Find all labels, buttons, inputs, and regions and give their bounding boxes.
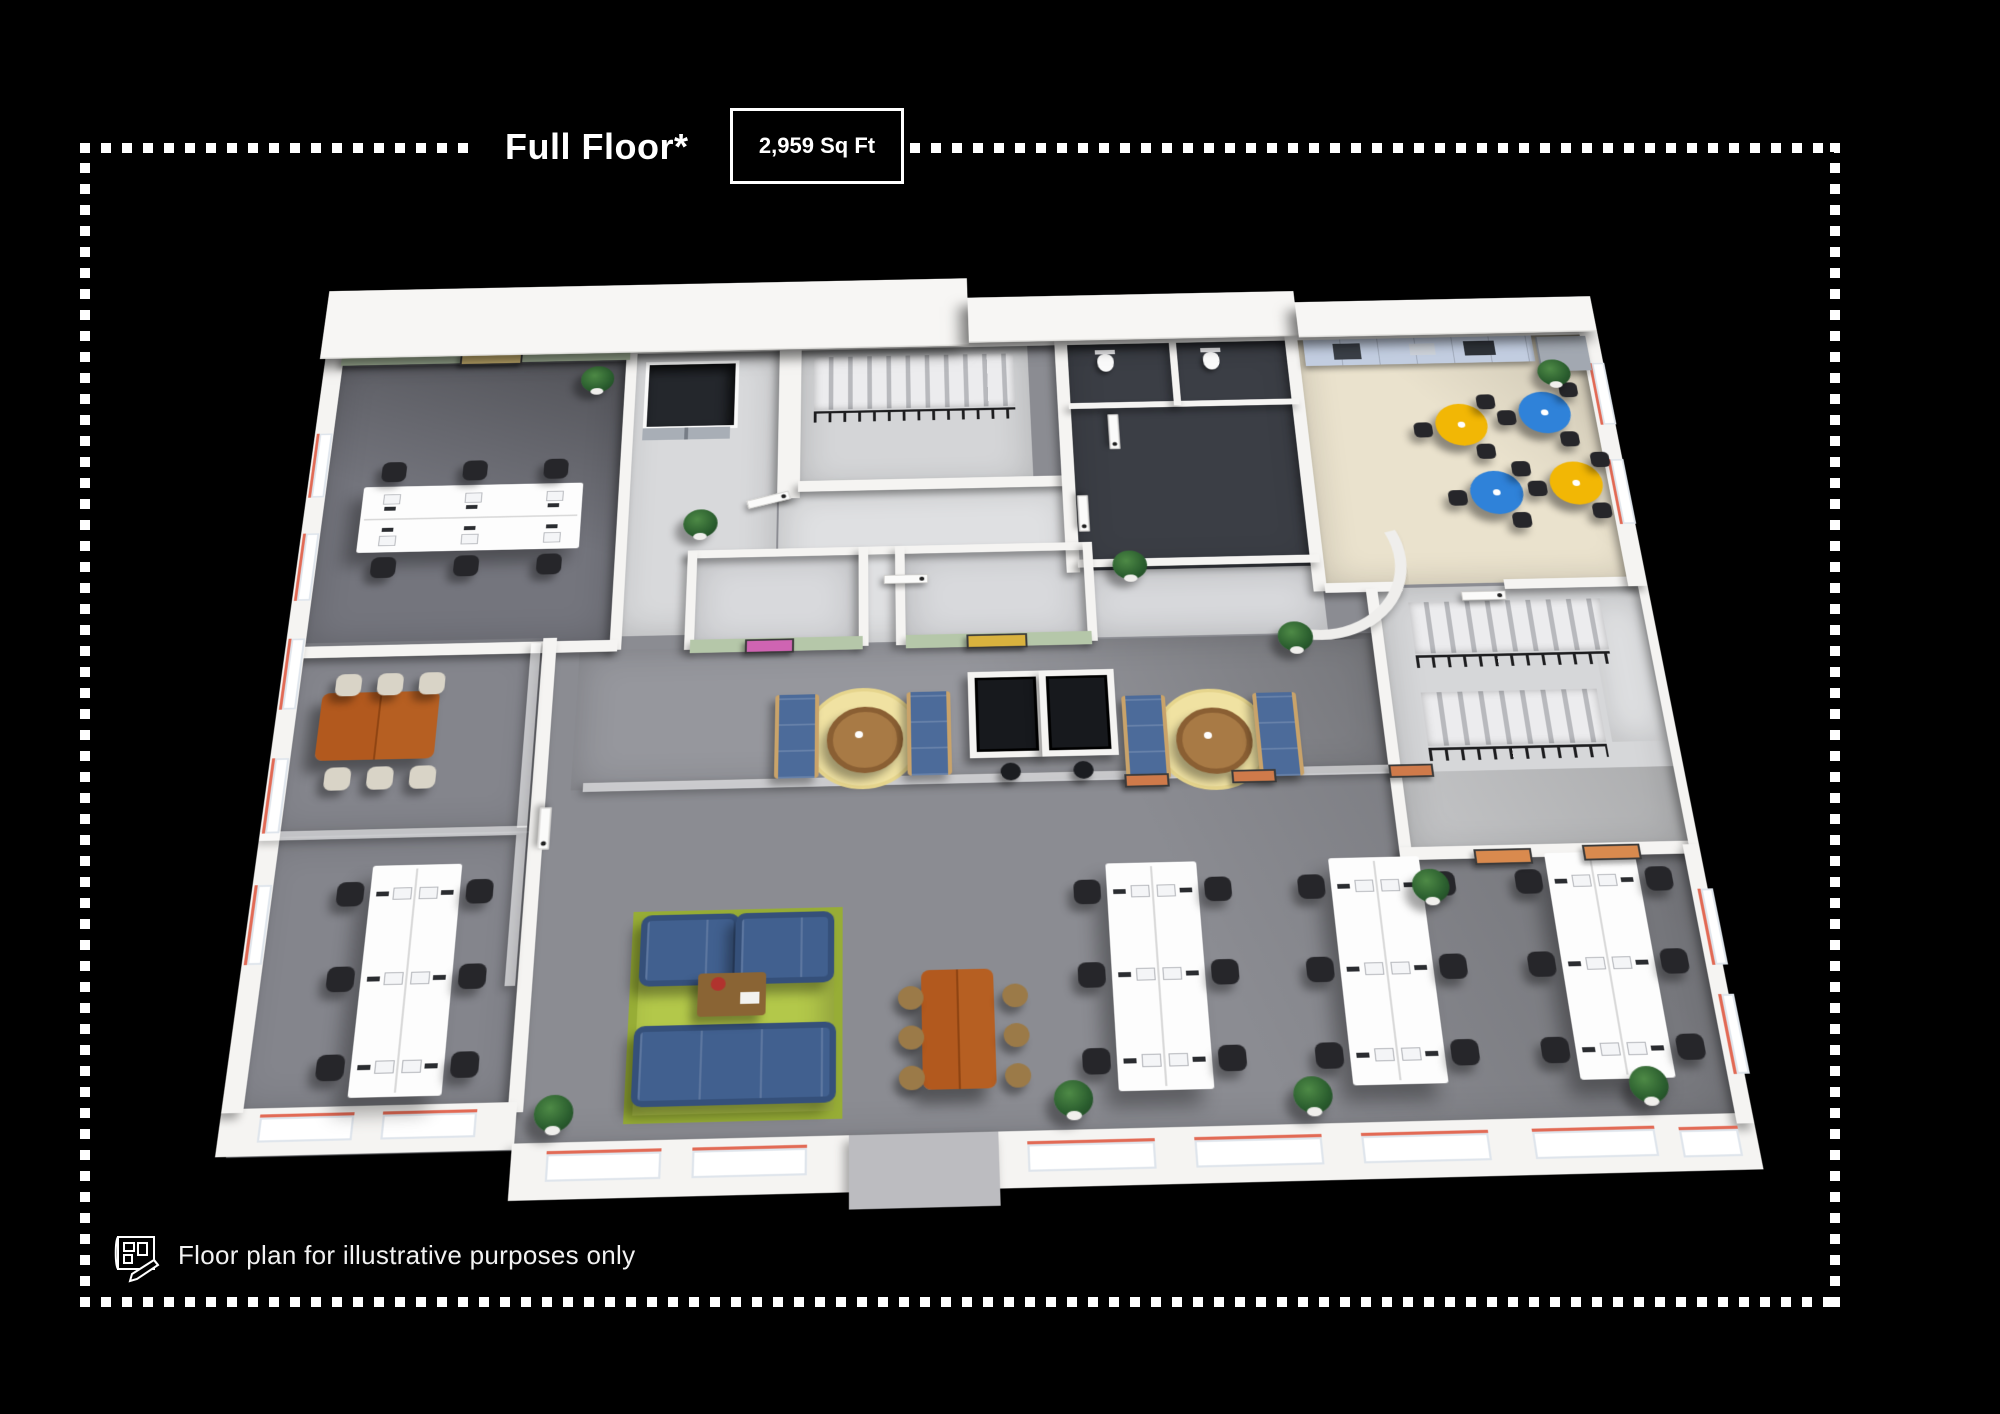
monitor: [1626, 1042, 1648, 1056]
keyboard: [548, 503, 560, 507]
conference-table: [314, 691, 440, 761]
conference-chair: [418, 672, 446, 695]
roof-slab: [320, 278, 969, 359]
monitor: [543, 532, 561, 543]
monitor: [1162, 967, 1182, 980]
area-badge: 2,959 Sq Ft: [730, 108, 904, 184]
window: [380, 1109, 477, 1139]
keyboard: [1123, 1058, 1136, 1063]
monitor: [1130, 885, 1150, 898]
keyboard: [1620, 877, 1633, 882]
office-chair: [1539, 1037, 1571, 1064]
border-left: [80, 143, 90, 1307]
keyboard: [1118, 972, 1131, 977]
keyboard: [1186, 970, 1199, 975]
kitchen-appliance: [1463, 341, 1496, 356]
keyboard: [1554, 879, 1567, 884]
keyboard: [1113, 889, 1126, 894]
wall-artwork: [1582, 844, 1642, 861]
cafe-chair: [1589, 452, 1611, 468]
window: [1678, 1126, 1743, 1158]
monitor: [1136, 968, 1156, 981]
cafe-chair: [1591, 502, 1613, 518]
keyboard: [1346, 967, 1359, 972]
kitchen-appliance: [1332, 343, 1361, 359]
office-chair: [1643, 866, 1674, 891]
cafe-chair: [1447, 490, 1468, 506]
keyboard: [1180, 888, 1193, 893]
staircase: [1421, 689, 1607, 746]
elevator-doors: [642, 427, 730, 441]
nook-bench: [907, 691, 953, 775]
toilet: [1202, 352, 1220, 370]
office-chair: [369, 557, 397, 578]
floor-plan-3d: [205, 320, 1767, 1228]
cafe-chair: [1475, 394, 1496, 409]
office-chair: [1077, 962, 1106, 988]
roof-slab: [1295, 296, 1597, 337]
monitor: [1390, 961, 1411, 974]
framed-panel: [967, 670, 1046, 758]
office-chair: [1526, 951, 1557, 977]
wall: [777, 343, 802, 498]
keyboard: [357, 1065, 371, 1070]
monitor: [1585, 957, 1606, 970]
office-chair: [1449, 1039, 1481, 1066]
monitor: [1597, 874, 1618, 887]
sofa: [630, 1021, 836, 1107]
conference-chair: [334, 674, 363, 697]
keyboard: [464, 526, 476, 530]
conference-chair: [365, 766, 394, 790]
keyboard: [1192, 1057, 1205, 1062]
conference-chair: [323, 767, 352, 791]
monitor: [1354, 880, 1374, 893]
roof-slab: [967, 291, 1298, 343]
window: [545, 1148, 662, 1182]
wall-artwork: [1231, 769, 1277, 783]
wall-artwork: [1388, 764, 1434, 778]
keyboard: [1425, 1051, 1439, 1056]
monitor: [1611, 956, 1632, 969]
cafe-chair: [1559, 431, 1580, 446]
keyboard: [1356, 1053, 1369, 1058]
keyboard: [546, 524, 558, 528]
office-chair: [1073, 879, 1101, 904]
monitor: [1599, 1042, 1621, 1056]
monitor: [1380, 879, 1400, 892]
border-right: [1830, 143, 1840, 1307]
office-chair: [1217, 1044, 1247, 1071]
monitor: [374, 1060, 395, 1074]
wc-floor: [1065, 339, 1320, 571]
wall: [895, 546, 906, 645]
wall-artwork: [745, 638, 794, 653]
wall: [859, 547, 869, 646]
cafe-chair: [1476, 443, 1497, 459]
keyboard: [382, 528, 394, 532]
office-chair: [1314, 1042, 1345, 1069]
monitor: [392, 887, 412, 900]
cafe-table-center: [1540, 409, 1548, 415]
door-handle: [781, 494, 787, 499]
monitor: [546, 491, 564, 501]
office-chair: [1674, 1033, 1707, 1060]
keyboard: [1651, 1045, 1665, 1050]
border-top-left-segment: [80, 143, 470, 153]
door: [1077, 495, 1090, 531]
monitor: [465, 492, 483, 502]
monitor: [1141, 1054, 1161, 1068]
monitor: [460, 534, 478, 545]
nook-bench: [774, 694, 819, 779]
office-chair: [335, 882, 365, 907]
office-chair: [381, 462, 408, 482]
office-chair: [1438, 953, 1469, 979]
blueprint-pencil-icon: [110, 1230, 164, 1289]
wood-high-table: [921, 969, 997, 1090]
keyboard: [1414, 965, 1427, 970]
monitor: [1571, 874, 1592, 887]
nook-bench: [1252, 692, 1305, 776]
keyboard: [433, 975, 446, 980]
conference-chair: [376, 673, 404, 696]
office-chair: [1082, 1048, 1112, 1075]
staircase: [1408, 598, 1609, 653]
wall-artwork: [1473, 848, 1533, 865]
door-handle: [1497, 593, 1502, 597]
border-bottom: [80, 1297, 1840, 1307]
door: [1461, 591, 1507, 601]
cafe-table-center: [1493, 489, 1502, 495]
monitor: [410, 971, 430, 984]
door-handle: [1082, 524, 1087, 528]
keyboard: [1568, 961, 1581, 966]
door-handle: [1112, 442, 1117, 446]
wall-artwork: [966, 633, 1027, 648]
cafe-table-center: [1572, 480, 1581, 486]
keyboard: [1337, 884, 1350, 889]
keyboard: [1635, 960, 1649, 965]
office-chair: [315, 1054, 346, 1081]
window: [1194, 1134, 1324, 1168]
monitor: [378, 536, 396, 547]
monitor: [1374, 1048, 1395, 1062]
office-chair: [1659, 948, 1691, 974]
office-chair: [1204, 876, 1233, 901]
office-chair: [543, 459, 569, 479]
cafe-chair: [1496, 410, 1517, 425]
nook-table-center: [1204, 732, 1213, 739]
monitor: [1401, 1047, 1422, 1061]
staircase: [814, 353, 1015, 410]
office-chair: [450, 1051, 480, 1078]
office-chair: [465, 879, 494, 904]
door-handle: [541, 841, 546, 846]
office-chair: [1210, 959, 1240, 985]
disclaimer-text: Floor plan for illustrative purposes onl…: [178, 1240, 635, 1271]
window: [691, 1145, 807, 1179]
cafe-table-center: [1457, 422, 1465, 428]
office-chair: [325, 966, 356, 992]
magazine: [740, 992, 759, 1004]
office-chair: [1305, 957, 1335, 983]
framed-panel: [1039, 669, 1119, 757]
office-chair: [1297, 874, 1327, 899]
cafe-chair: [1413, 422, 1434, 437]
office-chair: [1514, 869, 1545, 894]
keyboard: [367, 976, 380, 981]
monitor: [401, 1060, 422, 1074]
conference-chair: [408, 765, 437, 789]
window: [1361, 1130, 1492, 1164]
office-chair: [536, 553, 563, 574]
monitor: [1156, 884, 1176, 897]
office-chair: [462, 460, 488, 480]
kitchen-appliance: [1409, 343, 1436, 355]
wall-artwork: [1124, 773, 1169, 787]
keyboard: [466, 505, 478, 509]
keyboard: [384, 507, 396, 511]
monitor: [1364, 962, 1385, 975]
window: [1027, 1138, 1156, 1172]
keyboard: [441, 890, 454, 895]
office-chair: [453, 555, 480, 576]
door-handle: [919, 577, 924, 581]
monitor: [1168, 1053, 1188, 1067]
keyboard: [376, 891, 389, 896]
monitor: [383, 494, 401, 504]
cafe-chair: [1511, 512, 1533, 528]
keyboard: [424, 1063, 437, 1068]
toilet-tank: [1095, 350, 1115, 355]
toilet-tank: [1200, 348, 1220, 353]
door: [884, 574, 929, 584]
entry-vestibule: [849, 1132, 1001, 1210]
cafe-chair: [1510, 461, 1531, 477]
keyboard: [1582, 1047, 1596, 1052]
monitor: [383, 972, 403, 985]
nook-bench: [1121, 695, 1171, 780]
office-chair: [457, 963, 487, 989]
meeting-room-1-floor: [690, 553, 859, 648]
window: [257, 1112, 355, 1142]
cafe-chair: [1527, 480, 1549, 496]
meeting-room-2-floor: [905, 548, 1088, 643]
page-title: Full Floor*: [505, 126, 688, 168]
border-top-right-segment: [910, 143, 1840, 153]
window: [1532, 1126, 1660, 1159]
monitor: [418, 887, 438, 900]
elevator-shaft: [643, 360, 740, 429]
